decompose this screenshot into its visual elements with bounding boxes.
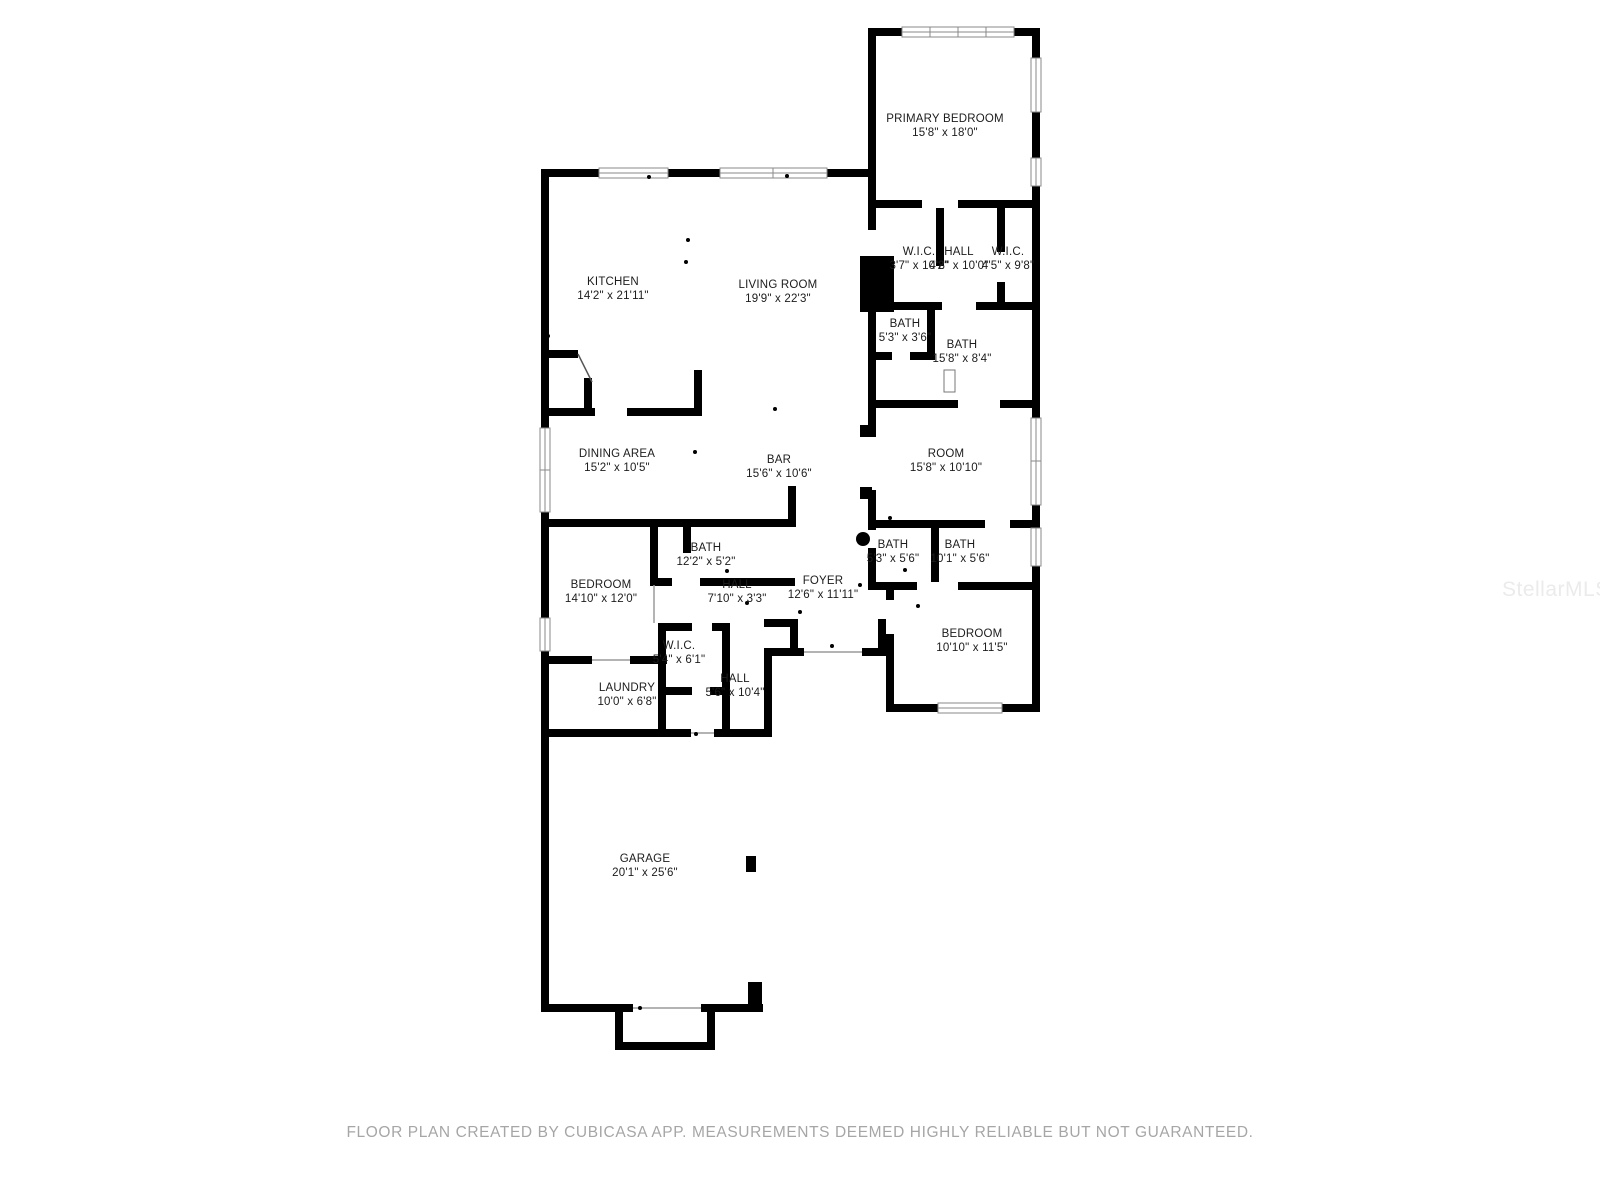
- window-primary-top: [902, 27, 1014, 37]
- window-primary-right-2: [1031, 158, 1041, 186]
- window-bedroom-left: [540, 618, 550, 651]
- windows-group: [540, 27, 1041, 713]
- door-markers-group: [546, 174, 964, 1010]
- bath-fixture: [944, 370, 955, 392]
- window-room-right: [1031, 418, 1041, 505]
- footer-disclaimer: FLOOR PLAN CREATED BY CUBICASA APP. MEAS…: [0, 1124, 1600, 1142]
- bath-door-knob: [856, 532, 870, 546]
- watermark: StellarMLS: [1502, 578, 1600, 602]
- floor-plan-page: PRIMARY BEDROOM 15'8" x 18'0" KITCHEN 14…: [0, 0, 1600, 1200]
- walls-group: [541, 28, 1040, 1050]
- window-dining-left: [540, 428, 550, 512]
- window-living-top: [720, 168, 827, 178]
- window-kitchen-top: [599, 168, 668, 178]
- window-bedroom2-bottom: [938, 703, 1002, 713]
- floor-plan-drawing: [0, 0, 1600, 1200]
- pantry-door-swing: [578, 354, 592, 382]
- window-bath-right: [1031, 528, 1041, 566]
- window-primary-right-1: [1031, 58, 1041, 112]
